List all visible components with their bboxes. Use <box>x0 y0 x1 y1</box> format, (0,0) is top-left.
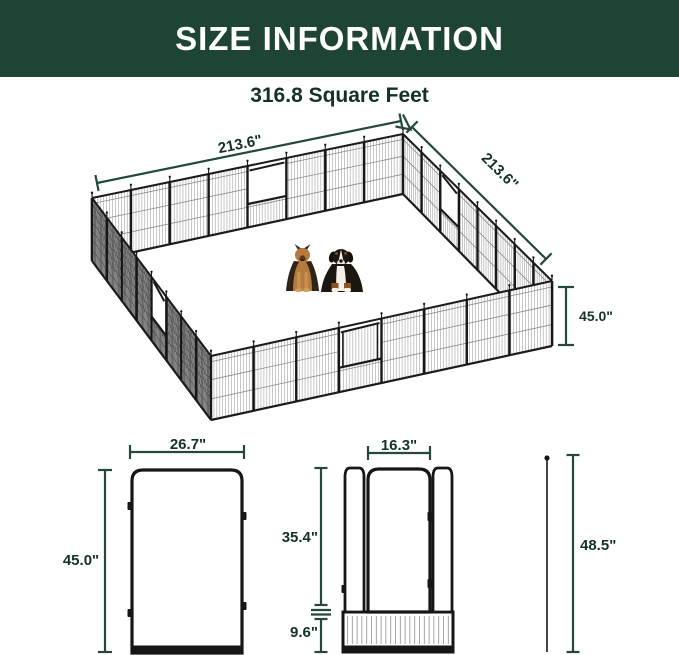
pen-depth-label: 213.6" <box>478 150 522 193</box>
size-information-page: SIZE INFORMATION 316.8 Square Feet <box>0 0 679 655</box>
stake-height-dimension <box>567 455 580 652</box>
pen-illustration <box>91 128 553 420</box>
ground-stake <box>544 455 549 652</box>
stake-height-label: 48.5" <box>580 537 616 554</box>
panel-height-dimension <box>98 470 112 652</box>
german-shepherd-illustration <box>286 244 319 292</box>
panel-height-label: 45.0" <box>63 552 99 569</box>
door-width-label: 16.3" <box>381 437 417 454</box>
door-upper-height-label: 35.4" <box>282 529 318 546</box>
size-diagram: 213.6" 213.6" 45.0" 26.7" <box>0 0 679 655</box>
pen-height-label: 45.0" <box>579 308 613 324</box>
bernese-dog-illustration <box>321 249 363 292</box>
door-lower-height-label: 9.6" <box>290 624 318 641</box>
panel-width-label: 26.7" <box>170 436 206 453</box>
panel-front-view <box>128 470 247 653</box>
pen-height-dimension <box>558 287 574 345</box>
door-panel-front-view <box>342 468 454 652</box>
